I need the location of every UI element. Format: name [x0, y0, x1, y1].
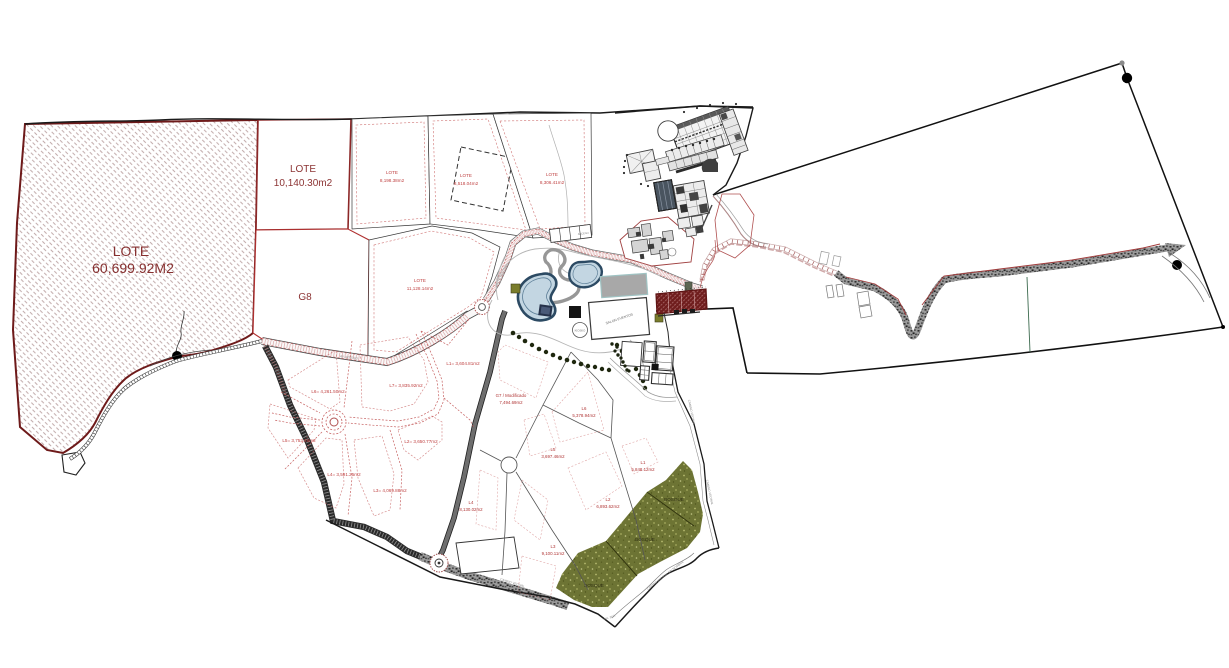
svg-text:10,140.30m2: 10,140.30m2 [274, 178, 333, 189]
svg-text:6,893.62m2: 6,893.62m2 [596, 504, 620, 509]
svg-text:5,378.94m2: 5,378.94m2 [572, 413, 596, 418]
svg-text:L1: L1 [641, 460, 646, 465]
svg-text:G8: G8 [298, 292, 312, 303]
svg-text:3,697.46m2: 3,697.46m2 [541, 454, 565, 459]
svg-text:L5= 3,753.46m2: L5= 3,753.46m2 [282, 438, 316, 443]
svg-text:L4: L4 [469, 500, 474, 505]
svg-text:L2: L2 [606, 497, 611, 502]
svg-text:L6: L6 [582, 406, 587, 411]
svg-text:L1= 3,604.81m2: L1= 3,604.81m2 [446, 361, 480, 366]
svg-text:11,128.14m2: 11,128.14m2 [407, 286, 434, 291]
svg-text:8,518.04m2: 8,518.04m2 [454, 181, 479, 186]
svg-text:LOTE: LOTE [386, 170, 398, 175]
svg-text:LOTE: LOTE [290, 164, 316, 175]
svg-text:BOSQUE: BOSQUE [635, 537, 655, 542]
svg-text:5,848.12m2: 5,848.12m2 [631, 467, 655, 472]
svg-text:8,306.41m2: 8,306.41m2 [540, 180, 565, 185]
svg-text:L4= 3,591.25m2: L4= 3,591.25m2 [327, 472, 361, 477]
svg-text:60,699.92M2: 60,699.92M2 [92, 260, 174, 276]
svg-text:8,130.02m2: 8,130.02m2 [459, 507, 483, 512]
svg-text:G7 / Modificado: G7 / Modificado [496, 393, 527, 398]
svg-text:KIOSKO: KIOSKO [575, 329, 587, 333]
svg-text:BOSQUE: BOSQUE [584, 583, 604, 588]
svg-text:LOTE: LOTE [113, 243, 150, 259]
svg-text:L3: L3 [551, 544, 556, 549]
svg-text:8,198.38m2: 8,198.38m2 [380, 178, 405, 183]
svg-text:LOTE: LOTE [414, 278, 426, 283]
svg-text:LOTE: LOTE [460, 173, 472, 178]
svg-text:L2= 3,650.77m2: L2= 3,650.77m2 [404, 439, 438, 444]
svg-text:BOSQUE: BOSQUE [664, 497, 684, 502]
svg-text:L3= 4,069.88m2: L3= 4,069.88m2 [373, 488, 407, 493]
svg-text:L7= 3,835.92m2: L7= 3,835.92m2 [389, 383, 423, 388]
svg-text:L6= 4,261.50m2: L6= 4,261.50m2 [311, 389, 345, 394]
svg-text:L5: L5 [551, 447, 556, 452]
svg-text:9,100.11m2: 9,100.11m2 [542, 551, 565, 556]
svg-text:7,494.69m2: 7,494.69m2 [499, 400, 523, 405]
svg-text:LOTE: LOTE [546, 172, 558, 177]
